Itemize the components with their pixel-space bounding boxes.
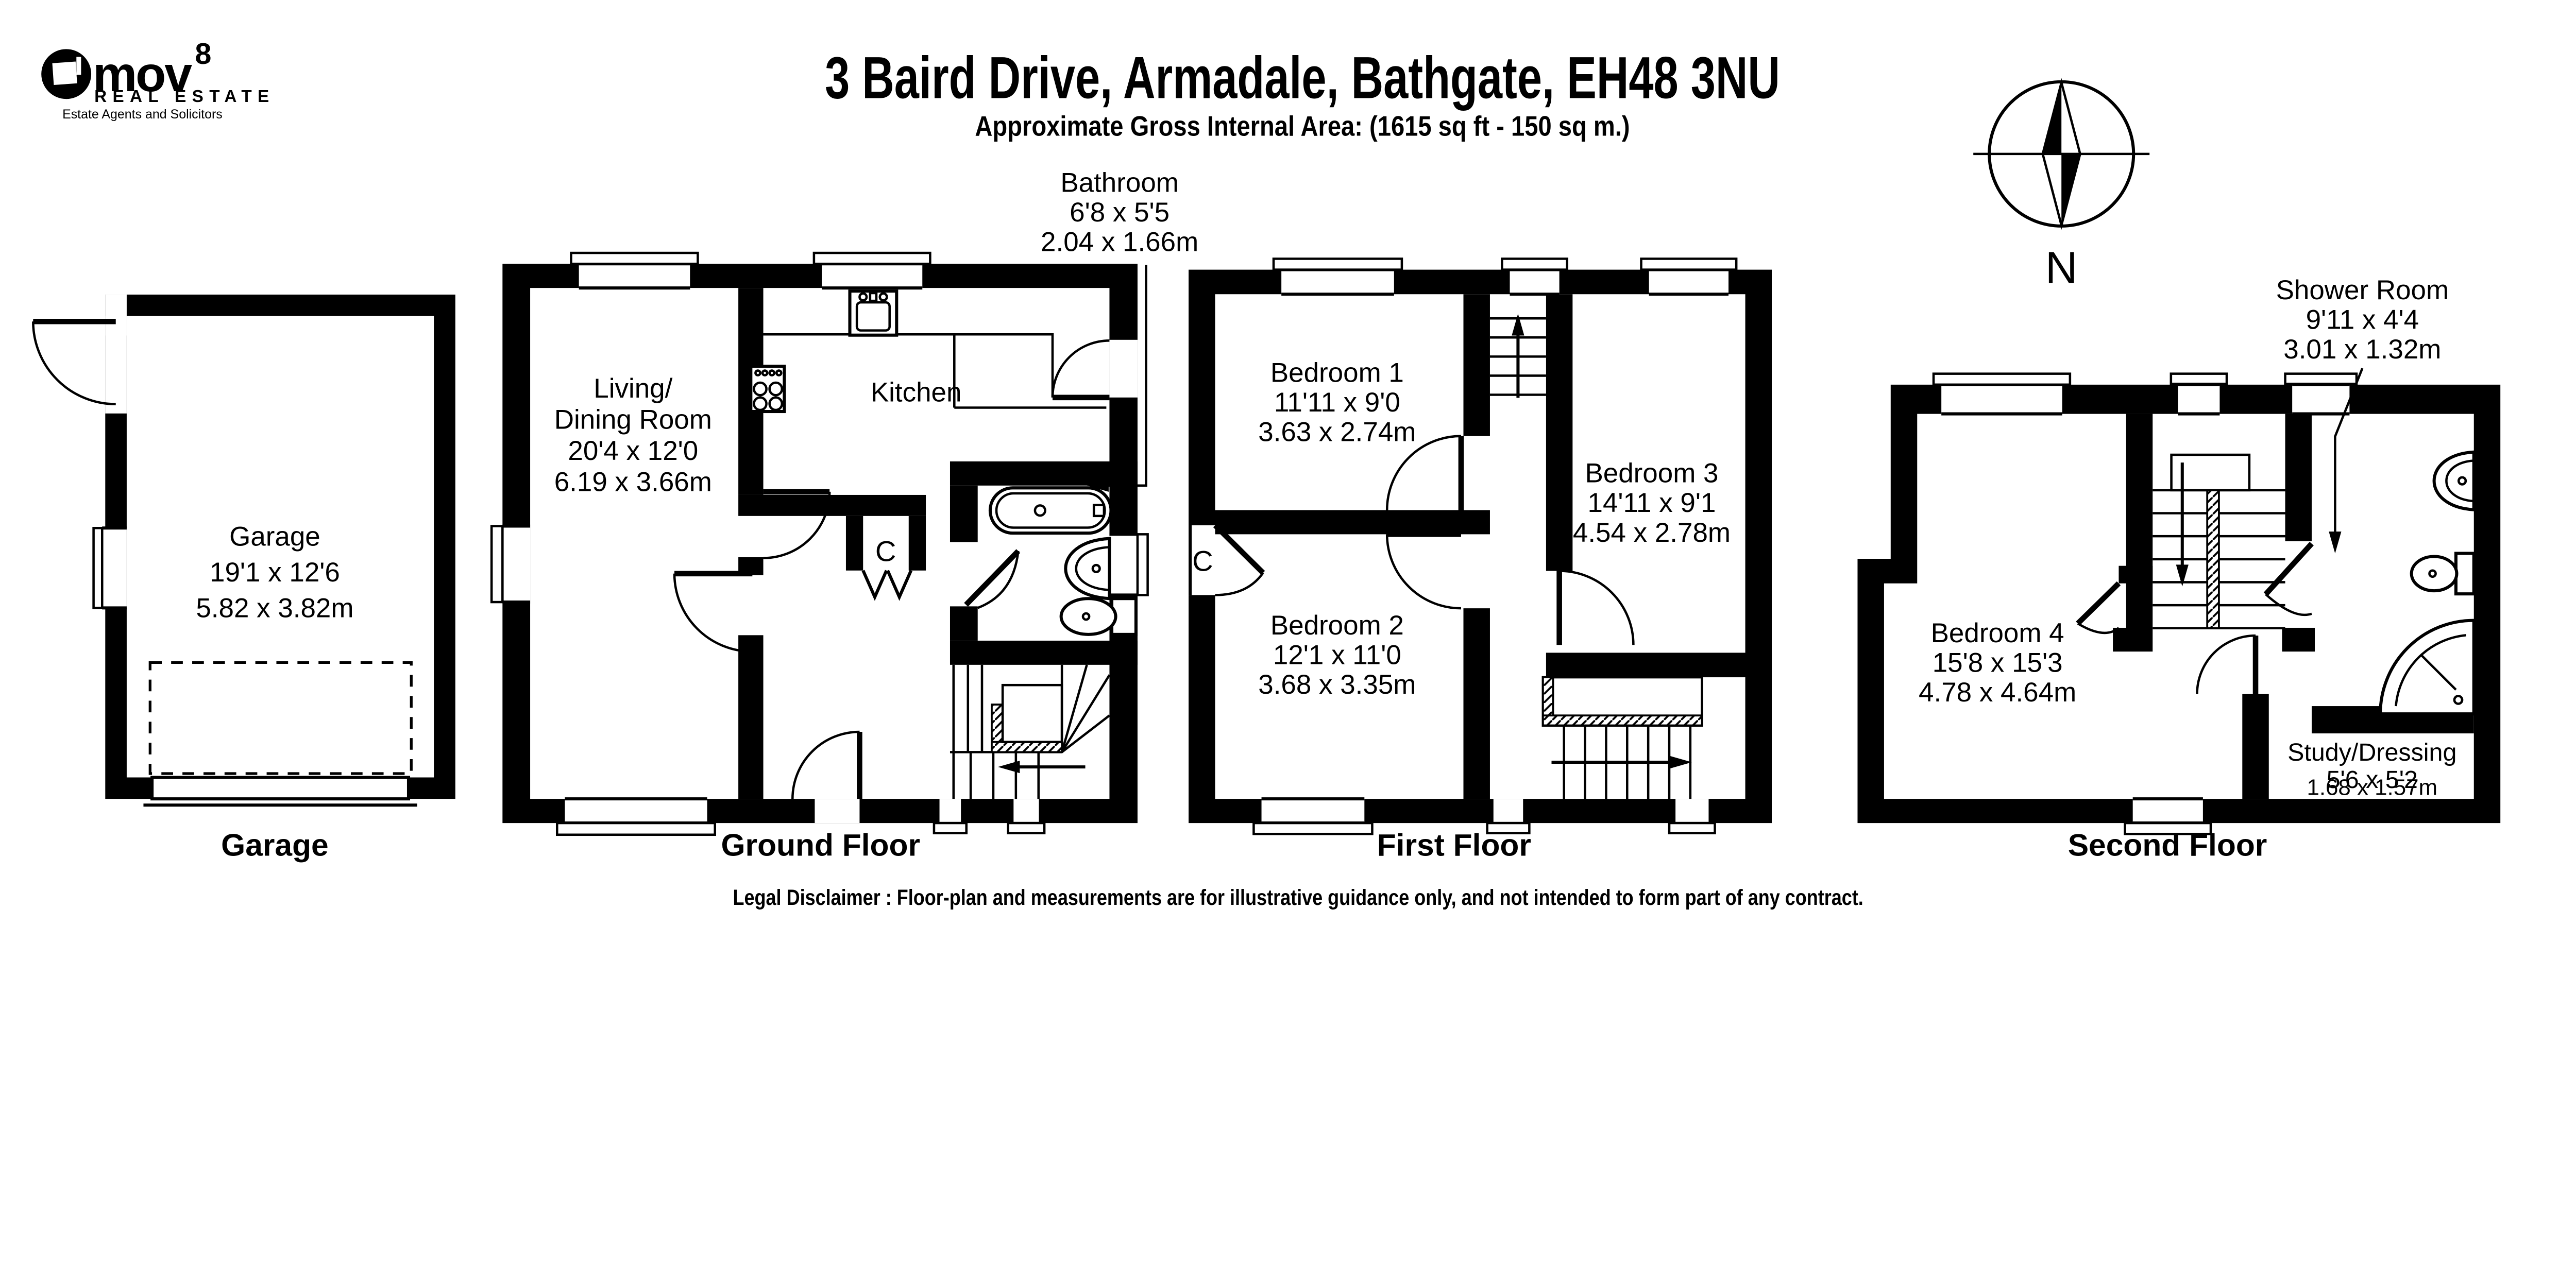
first-b2-window-frame — [1253, 823, 1372, 834]
second-b4-door-arc — [2197, 636, 2256, 694]
bathroom-name: Bathroom — [1060, 167, 1179, 198]
garage-room-imperial: 19'1 x 12'6 — [210, 557, 340, 588]
second-bottom-window-cut — [2133, 799, 2203, 823]
living-room-metric: 6.19 x 3.66m — [554, 467, 712, 497]
ground-bathroom-window-frame — [1138, 534, 1148, 595]
compass: N — [1973, 82, 2149, 293]
ground-stairs-void — [1003, 685, 1062, 742]
kitchen-name: Kitchen — [871, 377, 962, 407]
shower-tray-icon — [2380, 621, 2474, 714]
first-b3-door-arc — [1560, 571, 1634, 645]
garage-dashed-area — [150, 662, 411, 774]
garage-room-name: Garage — [229, 521, 320, 552]
page-subtitle: Approximate Gross Internal Area: (1615 s… — [975, 110, 1630, 142]
first-stairs-banister-bottom — [1543, 715, 1702, 726]
second-shower-window-cut — [2292, 385, 2349, 414]
compass-north-label: N — [2045, 243, 2078, 293]
garage-floor-title: Garage — [221, 828, 329, 863]
floorplan-canvas: mov 8 REAL ESTATE Estate Agents and Soli… — [0, 0, 2576, 960]
floor-plan-first: Bedroom 1 11'11 x 9'0 3.63 x 2.74m Bedro… — [1189, 259, 1772, 862]
floor-plan-ground: Living/ Dining Room 20'4 x 12'0 6.19 x 3… — [492, 167, 1198, 862]
shower-name: Shower Room — [2276, 275, 2449, 305]
bathroom-imperial: 6'8 x 5'5 — [1070, 197, 1170, 228]
first-cupboard-door-arc — [1215, 573, 1263, 595]
bedroom1-metric: 3.63 x 2.74m — [1258, 417, 1416, 448]
ground-front-door-arc — [792, 732, 859, 799]
first-b3-window-cut — [1649, 270, 1728, 295]
legal-disclaimer: Legal Disclaimer : Floor-plan and measur… — [733, 885, 1863, 910]
second-wall-stub-left — [2113, 628, 2153, 651]
first-stairs-up-arrowhead — [1512, 314, 1524, 335]
first-stairb-window-cut — [1675, 799, 1708, 823]
garage-window-cut — [102, 528, 127, 608]
ground-cupboard-wall-left — [846, 516, 863, 571]
first-wall-b1-b2 — [1215, 510, 1464, 534]
ground-kitchen-window-cut — [822, 264, 922, 288]
floor-plan-second: Shower Room 9'11 x 4'4 3.01 x 1.32m Bedr… — [1857, 275, 2500, 863]
garage-window-frame — [94, 528, 103, 608]
logo-chimney-icon — [76, 57, 81, 75]
living-room-imperial: 20'4 x 12'0 — [568, 436, 698, 466]
first-stairb-window-frame — [1669, 823, 1715, 833]
garage-vehicle-door-cut — [152, 778, 409, 799]
second-cupboard-door-leaf — [2078, 584, 2119, 624]
bathroom-metric: 2.04 x 1.66m — [1041, 227, 1198, 257]
ground-stairs-arrowhead — [998, 761, 1020, 773]
ground-cupboard-wall-right — [909, 516, 926, 571]
ground-living-bottomwindow-cut — [565, 799, 707, 823]
bedroom2-metric: 3.68 x 3.35m — [1258, 670, 1416, 700]
bedroom4-imperial: 15'8 x 15'3 — [1933, 647, 2063, 678]
first-stairs-arrowhead — [1670, 756, 1692, 768]
first-wall-landing-lower — [1463, 608, 1489, 799]
second-b4-window-cut — [1941, 385, 2062, 414]
second-cupboard-wall-top — [2119, 566, 2153, 584]
ground-small-window2-frame — [1008, 823, 1044, 833]
study-metric: 1.68 x 1.57m — [2307, 775, 2437, 800]
second-floor-title: Second Floor — [2068, 828, 2267, 863]
ground-outer-walls — [502, 264, 1138, 823]
ground-left-window-cut — [502, 526, 530, 602]
second-wall-b4-study — [2242, 694, 2268, 799]
ground-bathroom-wall-left — [950, 486, 978, 542]
ground-bathroom-wall-left2 — [950, 606, 978, 641]
second-stairs-banister — [2207, 490, 2219, 628]
first-b2-door-arc — [1387, 534, 1461, 608]
ground-wall-living-hall — [738, 635, 763, 799]
living-room-name1: Living/ — [594, 373, 672, 404]
second-b4-window-frame — [1934, 374, 2070, 385]
first-b1-window-frame — [1274, 259, 1402, 269]
living-room-name2: Dining Room — [554, 404, 712, 435]
ground-back-door-arc — [1053, 340, 1109, 397]
bedroom1-name: Bedroom 1 — [1270, 358, 1404, 388]
first-floor-title: First Floor — [1377, 828, 1531, 863]
logo: mov 8 REAL ESTATE Estate Agents and Soli… — [41, 38, 275, 122]
ground-bathroom-window-cut — [1109, 534, 1137, 595]
bedroom4-name: Bedroom 4 — [1931, 618, 2064, 648]
ground-wall-hall-top — [738, 495, 926, 516]
second-wall-shower-left — [2285, 414, 2312, 541]
ground-back-door-cut — [1109, 340, 1137, 398]
shower-leader-arrowhead — [2329, 531, 2341, 553]
ground-kitchen-window-frame — [814, 253, 930, 264]
bedroom3-metric: 4.54 x 2.78m — [1573, 518, 1731, 548]
logo-house-icon — [52, 62, 77, 85]
ground-living-topwindow-cut — [579, 264, 690, 288]
ground-bathroom-wall-bottom — [950, 641, 1138, 665]
ground-stairs-banister2 — [992, 742, 1062, 752]
logo-line3: Estate Agents and Solicitors — [62, 107, 223, 122]
second-stair-window-cut — [2178, 385, 2219, 414]
first-b1-window-cut — [1281, 270, 1394, 295]
shower-toilet-cistern-icon — [2456, 553, 2474, 594]
ground-cupboard-doors — [863, 571, 911, 597]
first-wall-stairs-right — [1546, 294, 1572, 571]
bedroom2-imperial: 12'1 x 11'0 — [1273, 640, 1401, 670]
floor-plan-garage: Garage 19'1 x 12'6 5.82 x 3.82m Garage — [33, 295, 455, 863]
first-wall-b3-bottom — [1546, 653, 1772, 677]
study-name: Study/Dressing — [2287, 739, 2456, 766]
bedroom3-imperial: 14'11 x 9'1 — [1588, 488, 1716, 518]
ground-small-window1-cut — [940, 799, 961, 823]
ground-left-window-frame — [492, 526, 502, 602]
bedroom2-name: Bedroom 2 — [1270, 610, 1404, 641]
bedroom3-name: Bedroom 3 — [1585, 458, 1718, 489]
first-cupboard-label: C — [1192, 545, 1213, 577]
second-shower-window-frame — [2285, 374, 2357, 384]
ground-small-window2-cut — [1013, 799, 1039, 823]
shower-imperial: 9'11 x 4'4 — [2306, 305, 2419, 335]
ground-cupboard-label: C — [875, 535, 896, 568]
second-stair-window-frame — [2171, 374, 2227, 384]
ground-bathroom-wall-top — [950, 461, 1138, 486]
garage-door-opening2 — [105, 316, 127, 414]
ground-small-window1-frame — [934, 823, 967, 833]
second-cupboard-door-arc — [2078, 624, 2119, 633]
bedroom4-metric: 4.78 x 4.64m — [1919, 677, 2076, 708]
second-wall-stub-right — [2282, 628, 2315, 651]
garage-side-door-arc — [33, 321, 115, 404]
page-title: 3 Baird Drive, Armadale, Bathgate, EH48 … — [825, 45, 1780, 111]
ground-living-topwindow-frame — [571, 253, 698, 264]
logo-line2: REAL ESTATE — [94, 87, 275, 106]
first-stair-window-frame — [1502, 259, 1567, 269]
logo-superscript: 8 — [195, 38, 211, 71]
garage-room-metric: 5.82 x 3.82m — [196, 593, 353, 624]
first-wall-landing-upper — [1463, 294, 1489, 436]
bedroom1-imperial: 11'11 x 9'0 — [1274, 387, 1400, 418]
ground-front-door-cut — [815, 799, 859, 823]
first-landing-window-cut — [1494, 799, 1523, 823]
shower-toilet-icon — [2412, 557, 2457, 591]
first-wall-junction — [1463, 510, 1489, 534]
ground-floor-title: Ground Floor — [721, 828, 920, 863]
first-stair-window-cut — [1510, 270, 1560, 295]
second-cupboard-label: C — [2125, 594, 2146, 627]
first-b3-window-frame — [1641, 259, 1737, 269]
shower-metric: 3.01 x 1.32m — [2283, 334, 2441, 365]
ground-living-bottomwindow-frame — [557, 823, 715, 835]
header: 3 Baird Drive, Armadale, Bathgate, EH48 … — [825, 45, 1780, 142]
second-shower-door-leaf — [2266, 544, 2312, 594]
first-b2-window-cut — [1262, 799, 1365, 823]
